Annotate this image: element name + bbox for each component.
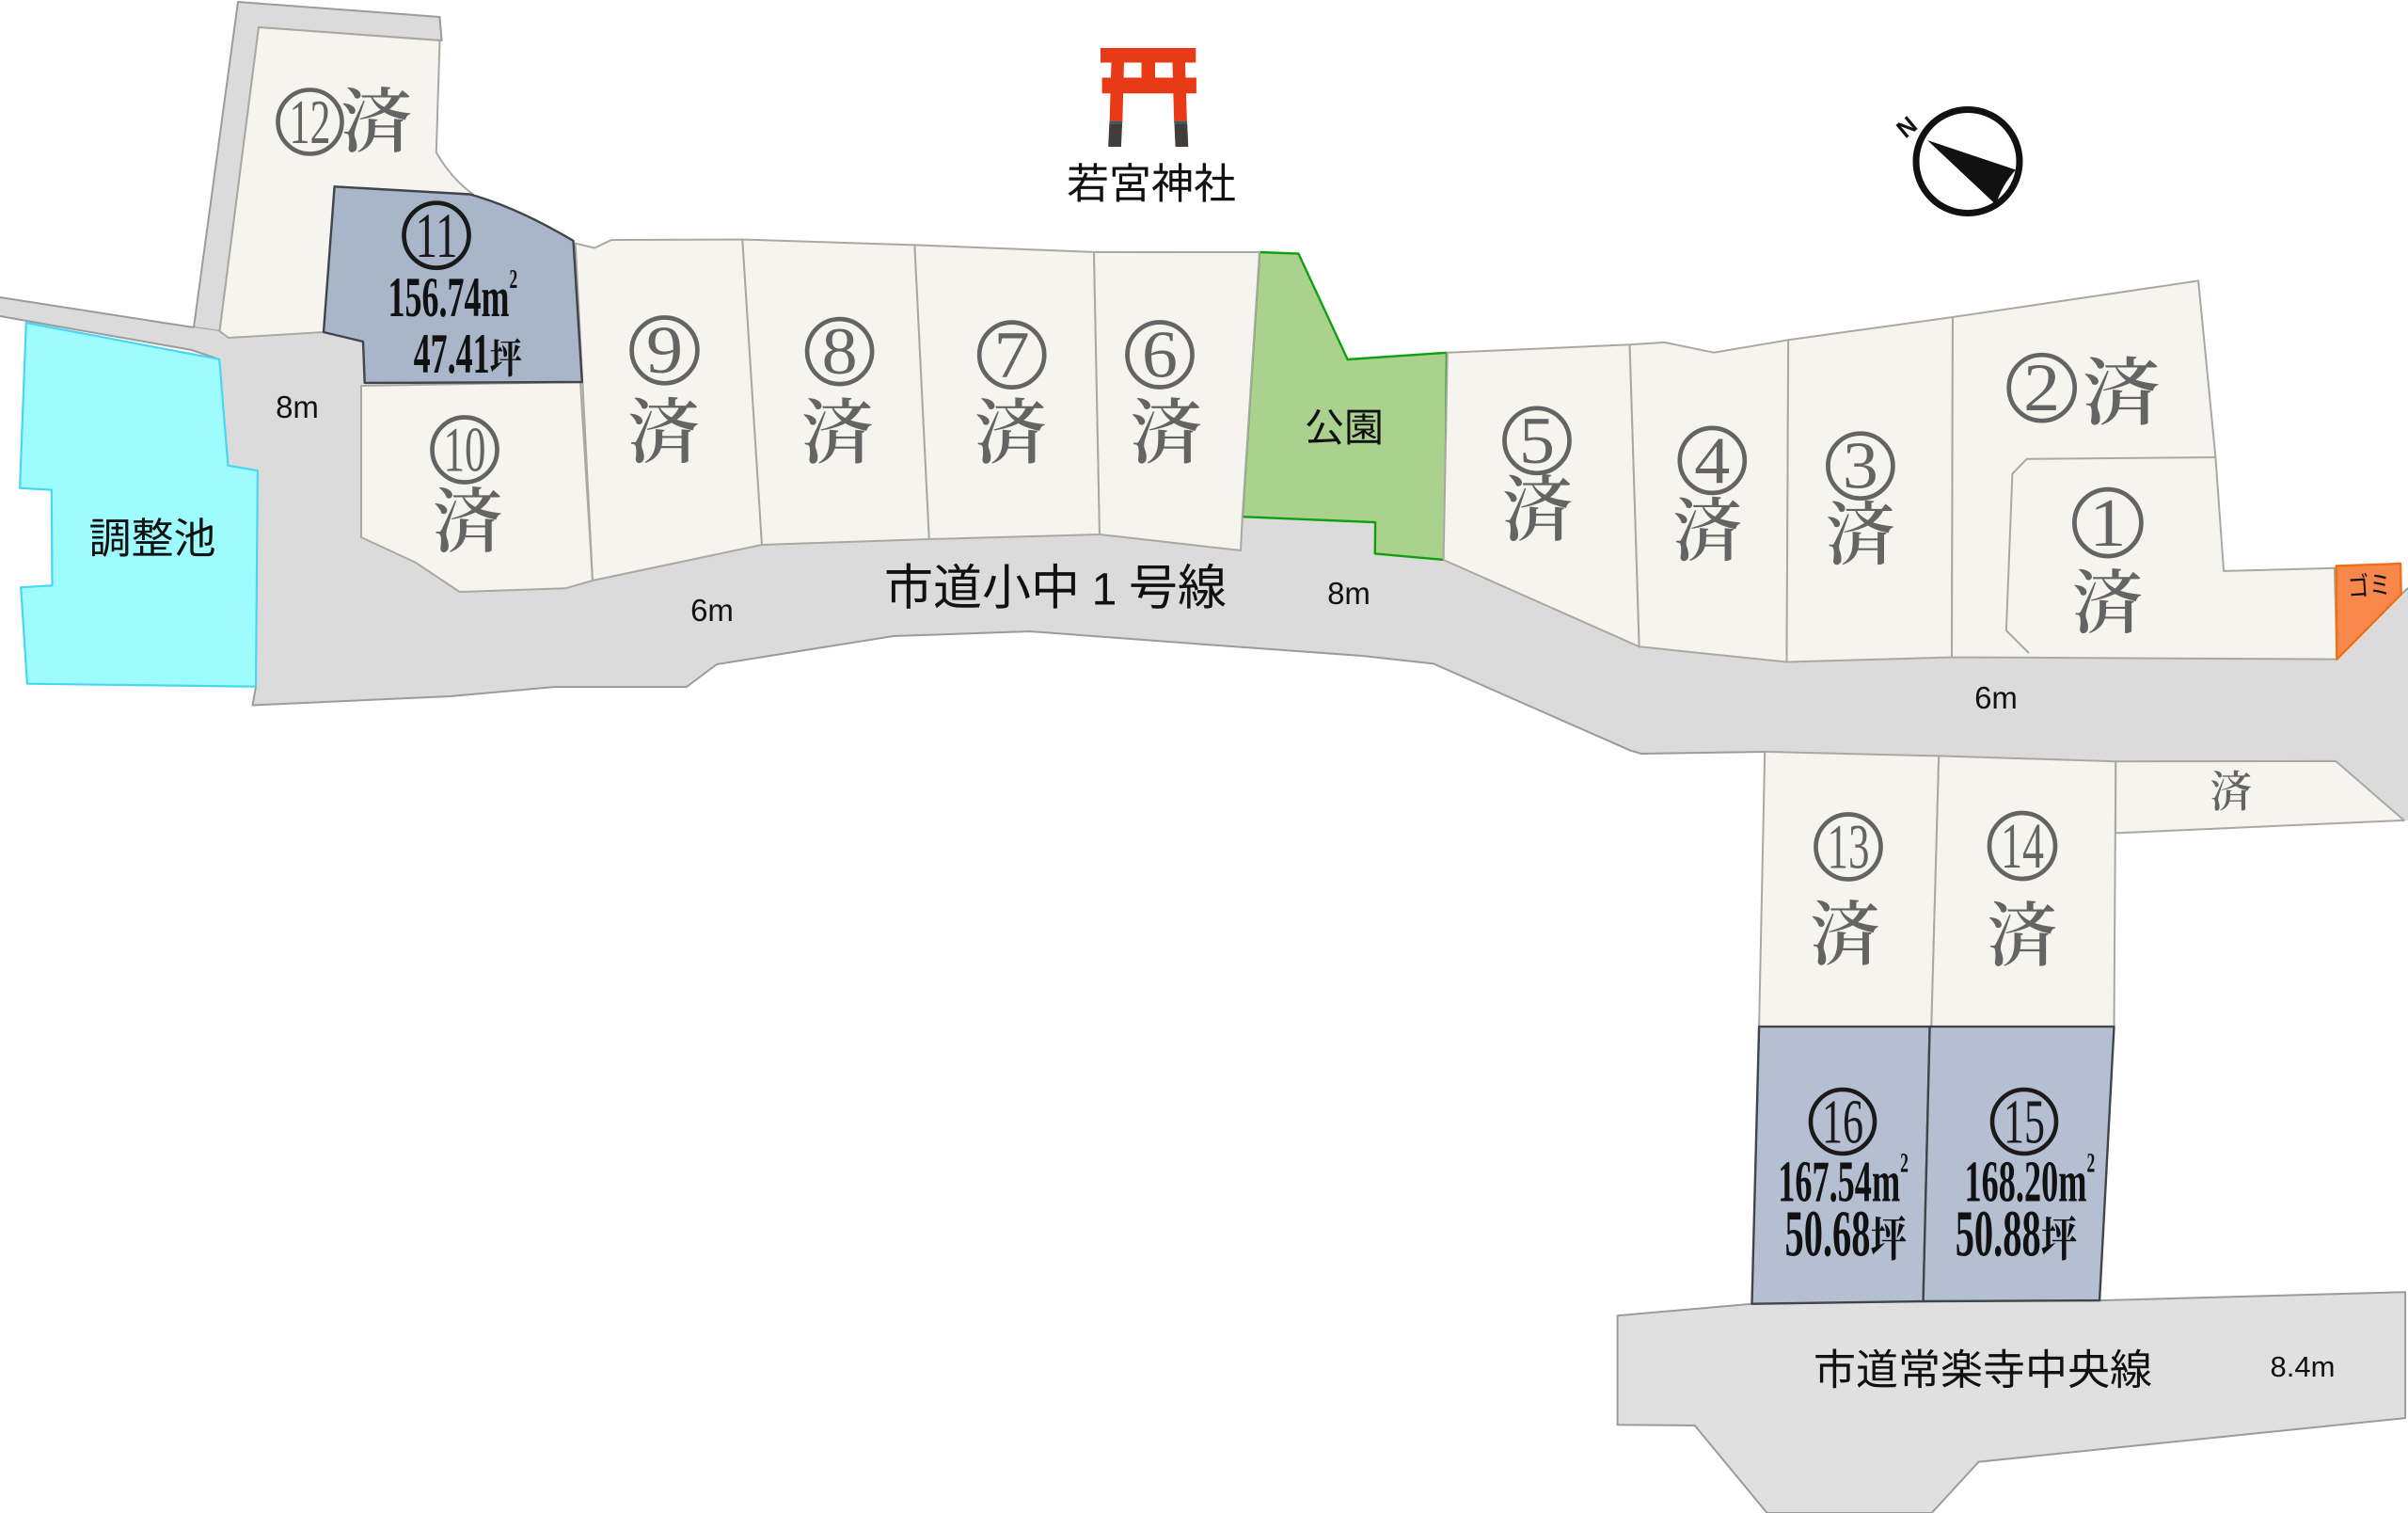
svg-text:6: 6	[1142, 319, 1178, 392]
svg-text:6m: 6m	[690, 593, 734, 628]
svg-text:9: 9	[646, 312, 683, 388]
svg-text:50.88: 50.88	[1956, 1198, 2041, 1270]
svg-text:14: 14	[2001, 810, 2044, 882]
svg-text:5: 5	[1519, 405, 1555, 478]
svg-text:1: 1	[1092, 565, 1117, 615]
svg-text:7: 7	[994, 319, 1030, 392]
svg-text:13: 13	[1828, 811, 1870, 883]
svg-text:2: 2	[1900, 1148, 1909, 1179]
svg-text:16: 16	[1822, 1087, 1863, 1156]
svg-text:3: 3	[1843, 430, 1878, 503]
svg-text:4: 4	[1694, 424, 1730, 498]
svg-text:2: 2	[2023, 350, 2060, 425]
svg-text:10: 10	[444, 414, 486, 486]
svg-text:8m: 8m	[276, 390, 319, 424]
svg-text:15: 15	[2004, 1087, 2045, 1156]
svg-text:11: 11	[416, 199, 458, 271]
svg-text:1: 1	[2089, 485, 2126, 561]
svg-text:8m: 8m	[1327, 576, 1370, 611]
svg-text:156.74m: 156.74m	[388, 266, 510, 329]
svg-text:47.41: 47.41	[414, 323, 490, 386]
svg-text:2: 2	[510, 265, 518, 295]
svg-text:8.4m: 8.4m	[2271, 1350, 2336, 1383]
svg-text:2: 2	[2086, 1148, 2095, 1179]
svg-text:8: 8	[822, 315, 858, 389]
svg-text:50.68: 50.68	[1784, 1198, 1870, 1270]
svg-text:6m: 6m	[1974, 680, 2018, 715]
svg-text:12: 12	[290, 88, 331, 157]
